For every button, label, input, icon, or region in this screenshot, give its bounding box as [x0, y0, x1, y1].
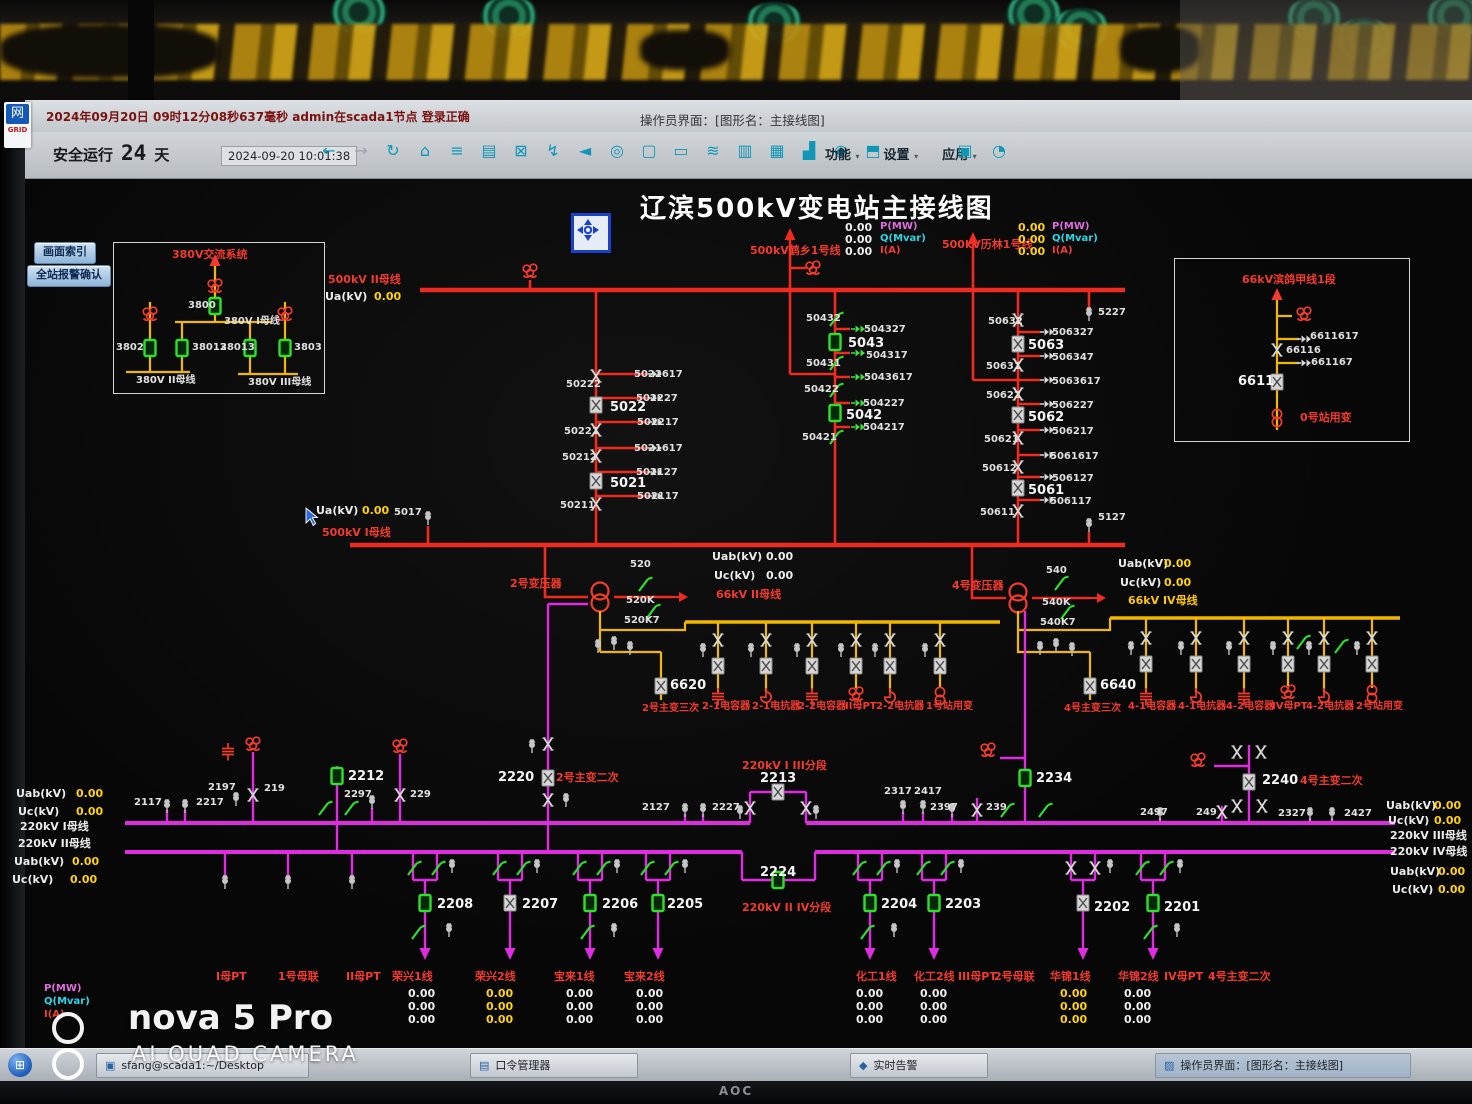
audio-mute-icon[interactable]: ◄: [573, 138, 597, 164]
menu-功能[interactable]: 功能 ▾: [825, 144, 860, 163]
220kv-feeder-arrow-icons: [420, 948, 1159, 960]
breaker-2202-icon[interactable]: [1077, 895, 1089, 911]
forward-icon[interactable]: →: [349, 138, 373, 164]
alarm-table-icon[interactable]: ▤: [477, 138, 501, 164]
breaker-3803-icon: [280, 340, 291, 356]
500kv-disconnector-icons[interactable]: [591, 314, 1024, 517]
breaker-38012-icon: [177, 340, 188, 356]
bar-chart-icon[interactable]: ▟: [797, 138, 821, 164]
layers-icon[interactable]: ≋: [701, 138, 725, 164]
report2-icon[interactable]: ▦: [765, 138, 789, 164]
breaker-5042-icon[interactable]: [830, 405, 841, 421]
main-toolbar: 安全运行24天 2024-09-20 10:01:38 ←→↻⌂≡▤⊠↯◄◎▢▭…: [25, 132, 1472, 179]
taskbar-item-icon: ▨: [1164, 1054, 1174, 1077]
safe-run-counter: 安全运行24天: [53, 141, 169, 165]
select-region-icon[interactable]: ▢: [637, 138, 661, 164]
clock-icon[interactable]: ◔: [987, 138, 1011, 164]
mouse-cursor: [306, 508, 318, 526]
500kv-pt-icons: [425, 307, 1093, 532]
panel-icon[interactable]: ▣: [953, 138, 977, 164]
cvt-icon: [523, 264, 537, 277]
taskbar-item-label: 操作员界面：[图形名：主接线图]: [1180, 1059, 1343, 1072]
breaker-2206-icon[interactable]: [585, 895, 596, 911]
breaker-5022-icon[interactable]: [590, 397, 602, 413]
taskbar-item[interactable]: ◆实时告警: [850, 1053, 988, 1078]
pan-navigator-glyph: [574, 216, 602, 244]
taskbar-item[interactable]: ▨操作员界面：[图形名：主接线图]: [1155, 1053, 1411, 1078]
breaker-2234-icon[interactable]: [1020, 770, 1031, 786]
toolbar-icon-group: ←→↻⌂≡▤⊠↯◄◎▢▭≋▥▦▟◉⬒: [317, 138, 885, 164]
breaker-2212-icon[interactable]: [332, 768, 343, 784]
breaker-38013-icon: [245, 340, 256, 356]
diagram-title: 辽滨500kV变电站主接线图: [640, 188, 994, 225]
safe-run-days: 24: [121, 141, 146, 165]
start-button[interactable]: ⊞: [8, 1053, 32, 1077]
monitor-bezel-bottom: AOC: [0, 1080, 1472, 1104]
login-status-text: 2024年09月20日 09时12分08秒637毫秒 admin在scada1节…: [46, 108, 470, 125]
breaker-6640-icon[interactable]: [1084, 678, 1096, 694]
breaker-5063-icon[interactable]: [1012, 336, 1024, 352]
500kv-pt-cluster-icons: [523, 261, 1026, 612]
watermark-brand: nova 5 Pro: [128, 998, 333, 1038]
500kv-earth-switch-icons[interactable]: [648, 326, 1054, 504]
breaker-2224-icon[interactable]: [773, 872, 784, 888]
220kv-lines: [125, 604, 1395, 948]
taskbar-item-icon: ▤: [479, 1054, 489, 1077]
breaker-2213-icon[interactable]: [772, 784, 784, 800]
breaker-5061-icon[interactable]: [1012, 480, 1024, 496]
380v-feed-arrow-icon: [210, 254, 221, 266]
trip-event-icon[interactable]: ↯: [541, 138, 565, 164]
taskbar-item[interactable]: ▤口令管理器: [470, 1053, 638, 1078]
transformer-2-icon[interactable]: [592, 583, 609, 612]
breaker-3800-icon: [210, 298, 221, 314]
watermark-camera: AI QUAD CAMERA: [132, 1042, 359, 1066]
66kv-line-exit-arrow-icon: [1272, 288, 1283, 300]
report-icon[interactable]: ▥: [733, 138, 757, 164]
66kv-open-switch-icons[interactable]: [1297, 636, 1349, 654]
66kv-feeder-breaker-icons[interactable]: [712, 656, 1378, 674]
breaker-2201-icon[interactable]: [1148, 895, 1159, 911]
breaker-2240-icon[interactable]: [1243, 774, 1255, 790]
menu-设置[interactable]: 设置 ▾: [884, 144, 919, 163]
breaker-5021-icon[interactable]: [590, 473, 602, 489]
grid-logo-glyph: 网: [6, 104, 29, 124]
line-exit-arrow-icon: [785, 228, 796, 240]
refresh-icon[interactable]: ↻: [381, 138, 405, 164]
breaker-5043-icon[interactable]: [830, 334, 841, 350]
taskbar-item-icon: ◆: [859, 1054, 867, 1077]
line-exit-arrow-icon: [968, 232, 979, 244]
breaker-3802-icon: [145, 340, 156, 356]
66kv-capacitor-icons: [712, 688, 1250, 706]
breaker-6611-icon[interactable]: [1271, 374, 1283, 390]
transformer-4-icon[interactable]: [1010, 584, 1027, 613]
breaker-5062-icon[interactable]: [1012, 407, 1024, 423]
taskbar-item-label: 口令管理器: [495, 1059, 550, 1072]
back-icon[interactable]: ←: [317, 138, 341, 164]
grid-logo: 网 GRID: [4, 102, 31, 148]
pan-navigator-icon[interactable]: [571, 213, 611, 253]
breaker-2220-icon[interactable]: [542, 770, 554, 786]
monitor-brand: AOC: [719, 1084, 753, 1098]
breaker-2208-icon[interactable]: [420, 895, 431, 911]
transformer-tap-arrow-icon: [1089, 593, 1106, 603]
breaker-2207-icon[interactable]: [504, 895, 516, 911]
display-list-icon[interactable]: ≡: [445, 138, 469, 164]
breaker-6620-icon[interactable]: [655, 678, 667, 694]
note-icon[interactable]: ▭: [669, 138, 693, 164]
breaker-2205-icon[interactable]: [653, 895, 664, 911]
transformer-tap-arrow-icon: [671, 592, 688, 602]
380v-breaker-icons[interactable]: [145, 298, 291, 356]
camera-logo-icon: [52, 1012, 78, 1084]
66kv-box-earth-icons[interactable]: [1297, 336, 1311, 367]
window-caption: 操作员界面：[图形名：主接线图]: [640, 110, 825, 129]
taskbar-item-label: 实时告警: [873, 1059, 917, 1072]
cvt-icon: [806, 261, 820, 274]
220kv-transformer-icons: [222, 737, 1205, 766]
66kv-pt-transformer-icons: [849, 307, 1376, 704]
breaker-2203-icon[interactable]: [929, 895, 940, 911]
500kv-open-switch-icons[interactable]: [639, 313, 1075, 620]
zoom-icon[interactable]: ◎: [605, 138, 629, 164]
taskbar-item-icon: ▣: [105, 1054, 115, 1077]
close-view-icon[interactable]: ⊠: [509, 138, 533, 164]
breaker-2204-icon[interactable]: [865, 895, 876, 911]
toolbar-icon-group-2: ▣◔: [953, 138, 1011, 164]
home-icon[interactable]: ⌂: [413, 138, 437, 164]
500kv-lines: [350, 236, 1125, 598]
